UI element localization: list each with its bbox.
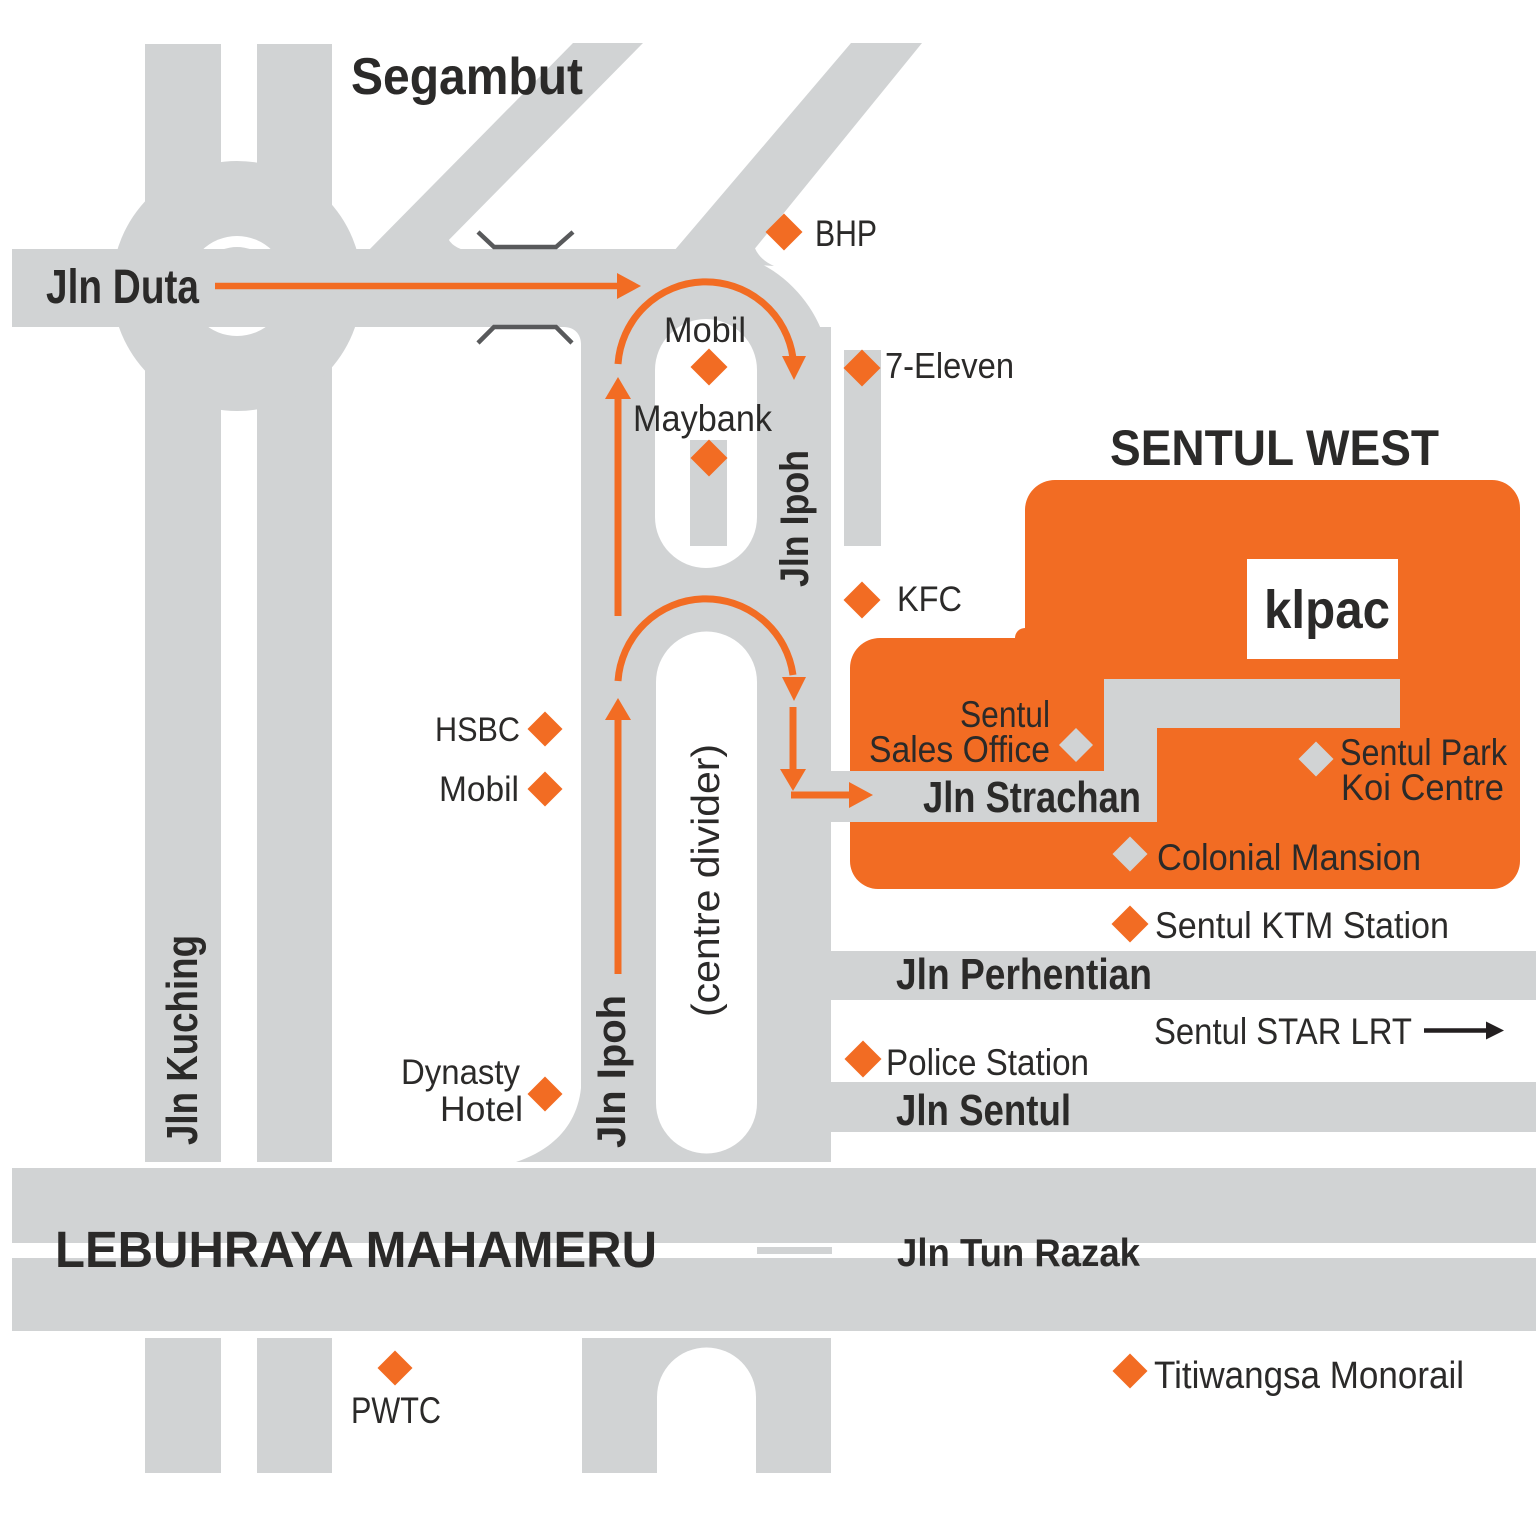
svg-text:Mobil: Mobil — [664, 311, 746, 350]
svg-text:Sales Office: Sales Office — [869, 729, 1050, 770]
svg-text:Dynasty: Dynasty — [401, 1053, 520, 1092]
svg-text:Jln Strachan: Jln Strachan — [923, 773, 1141, 822]
svg-text:HSBC: HSBC — [435, 711, 520, 749]
svg-text:Jln Tun Razak: Jln Tun Razak — [897, 1232, 1140, 1275]
svg-text:SENTUL WEST: SENTUL WEST — [1110, 420, 1439, 476]
svg-text:KFC: KFC — [897, 580, 962, 619]
svg-text:klpac: klpac — [1264, 580, 1390, 640]
svg-text:LEBUHRAYA MAHAMERU: LEBUHRAYA MAHAMERU — [55, 1221, 657, 1278]
svg-text:PWTC: PWTC — [351, 1390, 441, 1431]
svg-text:Mobil: Mobil — [439, 770, 519, 809]
svg-text:Titiwangsa Monorail: Titiwangsa Monorail — [1154, 1355, 1464, 1397]
svg-text:Jln Kuching: Jln Kuching — [158, 935, 207, 1145]
svg-text:Jln Perhentian: Jln Perhentian — [896, 950, 1152, 999]
svg-text:Jln Ipoh: Jln Ipoh — [590, 995, 634, 1148]
svg-text:Colonial Mansion: Colonial Mansion — [1157, 837, 1421, 878]
svg-text:7-Eleven: 7-Eleven — [885, 345, 1014, 386]
svg-text:BHP: BHP — [815, 213, 877, 254]
svg-text:Koi Centre: Koi Centre — [1341, 767, 1504, 808]
svg-text:Jln Sentul: Jln Sentul — [896, 1086, 1071, 1135]
svg-text:Jln Ipoh: Jln Ipoh — [773, 450, 817, 587]
svg-text:Jln Duta: Jln Duta — [46, 261, 199, 314]
svg-text:Sentul STAR LRT: Sentul STAR LRT — [1154, 1011, 1412, 1052]
svg-text:Hotel: Hotel — [440, 1090, 523, 1129]
svg-text:(centre divider): (centre divider) — [685, 744, 728, 1017]
svg-text:Sentul KTM Station: Sentul KTM Station — [1155, 905, 1449, 946]
svg-text:Segambut: Segambut — [351, 48, 583, 106]
svg-text:Maybank: Maybank — [633, 398, 772, 439]
svg-text:Police Station: Police Station — [886, 1042, 1089, 1083]
